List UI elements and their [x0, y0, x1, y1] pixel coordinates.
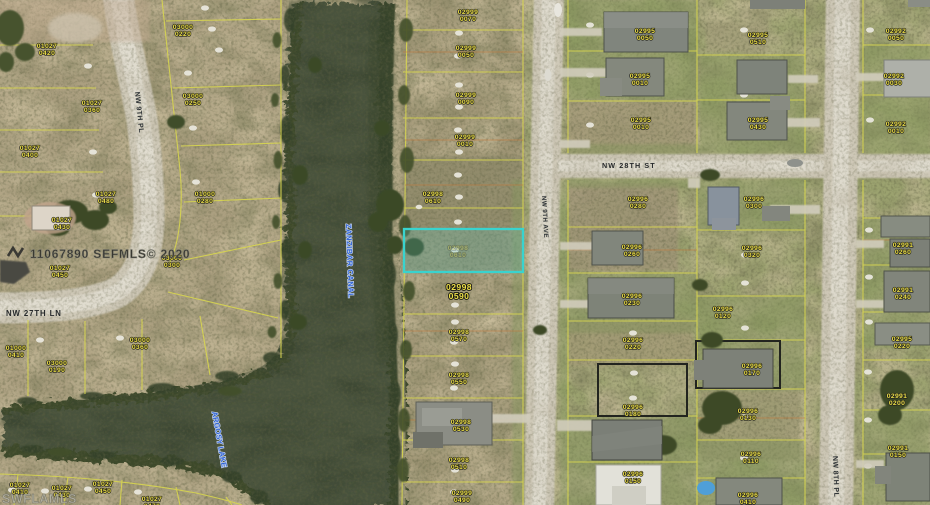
- svg-text:01027: 01027: [82, 100, 102, 107]
- svg-text:0610: 0610: [425, 198, 441, 205]
- svg-text:11067890 SEFMLS© 2020: 11067890 SEFMLS© 2020: [30, 247, 190, 261]
- svg-text:NW 27TH LN: NW 27TH LN: [6, 309, 62, 318]
- svg-text:01027: 01027: [52, 217, 72, 224]
- svg-text:0450: 0450: [52, 272, 68, 279]
- svg-text:0150: 0150: [890, 452, 906, 459]
- svg-text:02995: 02995: [892, 336, 912, 343]
- svg-text:02991: 02991: [888, 445, 908, 452]
- svg-text:02998: 02998: [451, 419, 471, 426]
- svg-text:03000: 03000: [47, 360, 67, 367]
- svg-text:02996: 02996: [628, 196, 648, 203]
- svg-text:02998: 02998: [449, 457, 469, 464]
- svg-text:0410: 0410: [740, 499, 756, 505]
- svg-text:01027: 01027: [96, 191, 116, 198]
- svg-text:0450: 0450: [95, 488, 111, 495]
- svg-text:0090: 0090: [458, 99, 474, 106]
- svg-text:01027: 01027: [37, 43, 57, 50]
- svg-text:0610: 0610: [450, 252, 466, 259]
- svg-text:02999: 02999: [452, 490, 472, 497]
- svg-text:0070: 0070: [460, 16, 476, 23]
- svg-text:02996: 02996: [713, 306, 733, 313]
- svg-text:02998: 02998: [448, 245, 468, 252]
- svg-text:02995: 02995: [748, 32, 768, 39]
- svg-text:0510: 0510: [750, 39, 766, 46]
- svg-text:0360: 0360: [84, 107, 100, 114]
- svg-text:02999: 02999: [458, 9, 478, 16]
- svg-text:0050: 0050: [888, 35, 904, 42]
- svg-text:02996: 02996: [623, 471, 643, 478]
- svg-text:0300: 0300: [164, 262, 180, 269]
- svg-text:02995: 02995: [748, 117, 768, 124]
- svg-text:0120: 0120: [715, 313, 731, 320]
- svg-text:02996: 02996: [744, 196, 764, 203]
- svg-text:0570: 0570: [451, 336, 467, 343]
- svg-text:02991: 02991: [887, 393, 907, 400]
- svg-text:02999: 02999: [456, 92, 476, 99]
- svg-text:01027: 01027: [142, 496, 162, 503]
- svg-text:02996: 02996: [623, 337, 643, 344]
- svg-text:0200: 0200: [889, 400, 905, 407]
- svg-text:02996: 02996: [741, 451, 761, 458]
- svg-text:0430: 0430: [750, 124, 766, 131]
- svg-text:02996: 02996: [742, 245, 762, 252]
- svg-text:0550: 0550: [451, 379, 467, 386]
- svg-text:01027: 01027: [93, 481, 113, 488]
- svg-text:0130: 0130: [740, 415, 756, 422]
- svg-text:02991: 02991: [893, 242, 913, 249]
- svg-text:0280: 0280: [630, 203, 646, 210]
- svg-text:0360: 0360: [132, 344, 148, 351]
- svg-text:02996: 02996: [738, 492, 758, 499]
- svg-text:0010: 0010: [632, 80, 648, 87]
- svg-text:03000: 03000: [130, 337, 150, 344]
- svg-text:02995: 02995: [635, 28, 655, 35]
- svg-text:02992: 02992: [886, 121, 906, 128]
- svg-text:01027: 01027: [50, 265, 70, 272]
- svg-text:0050: 0050: [458, 52, 474, 59]
- svg-text:0220: 0220: [625, 344, 641, 351]
- svg-text:0190: 0190: [49, 367, 65, 374]
- svg-text:02996: 02996: [622, 244, 642, 251]
- svg-text:0490: 0490: [454, 497, 470, 504]
- svg-text:0400: 0400: [22, 152, 38, 159]
- svg-text:0220: 0220: [894, 343, 910, 350]
- svg-text:0220: 0220: [175, 31, 191, 38]
- svg-text:0480: 0480: [98, 198, 114, 205]
- svg-text:01027: 01027: [20, 145, 40, 152]
- svg-text:0150: 0150: [625, 478, 641, 485]
- svg-text:02998: 02998: [423, 191, 443, 198]
- svg-text:02992: 02992: [884, 73, 904, 80]
- svg-text:0410: 0410: [8, 352, 24, 359]
- svg-text:0280: 0280: [197, 198, 213, 205]
- svg-text:0430: 0430: [54, 224, 70, 231]
- svg-text:01027: 01027: [10, 482, 30, 489]
- svg-text:0510: 0510: [451, 464, 467, 471]
- svg-text:01000: 01000: [6, 345, 26, 352]
- svg-text:0260: 0260: [895, 249, 911, 256]
- svg-text:0300: 0300: [746, 203, 762, 210]
- svg-text:0170: 0170: [744, 370, 760, 377]
- svg-text:02996: 02996: [623, 404, 643, 411]
- svg-text:0420: 0420: [39, 50, 55, 57]
- svg-text:0050: 0050: [637, 35, 653, 42]
- svg-text:0030: 0030: [886, 80, 902, 87]
- svg-text:0180: 0180: [625, 411, 641, 418]
- svg-text:02998: 02998: [449, 372, 469, 379]
- svg-text:02996: 02996: [738, 408, 758, 415]
- svg-text:0230: 0230: [624, 300, 640, 307]
- svg-text:02995: 02995: [630, 73, 650, 80]
- svg-text:0110: 0110: [743, 458, 759, 465]
- svg-text:02991: 02991: [893, 287, 913, 294]
- svg-text:NW 28TH ST: NW 28TH ST: [602, 161, 656, 170]
- svg-text:02999: 02999: [456, 45, 476, 52]
- svg-text:01000: 01000: [195, 191, 215, 198]
- svg-text:02999: 02999: [455, 134, 475, 141]
- svg-text:0010: 0010: [888, 128, 904, 135]
- svg-text:0240: 0240: [895, 294, 911, 301]
- svg-text:03000: 03000: [173, 24, 193, 31]
- svg-text:01027: 01027: [52, 485, 72, 492]
- svg-text:02996: 02996: [742, 363, 762, 370]
- svg-text:NW 8TH PL: NW 8TH PL: [831, 456, 839, 498]
- svg-text:02995: 02995: [631, 117, 651, 124]
- svg-text:03000: 03000: [183, 93, 203, 100]
- svg-text:0590: 0590: [449, 291, 470, 301]
- svg-text:0260: 0260: [624, 251, 640, 258]
- svg-text:SWFLAMLS: SWFLAMLS: [2, 492, 77, 505]
- svg-text:0530: 0530: [453, 426, 469, 433]
- svg-text:02996: 02996: [622, 293, 642, 300]
- svg-text:0010: 0010: [633, 124, 649, 131]
- svg-text:0250: 0250: [185, 100, 201, 107]
- svg-text:02992: 02992: [886, 28, 906, 35]
- svg-text:02998: 02998: [449, 329, 469, 336]
- svg-text:0320: 0320: [744, 252, 760, 259]
- svg-text:0010: 0010: [457, 141, 473, 148]
